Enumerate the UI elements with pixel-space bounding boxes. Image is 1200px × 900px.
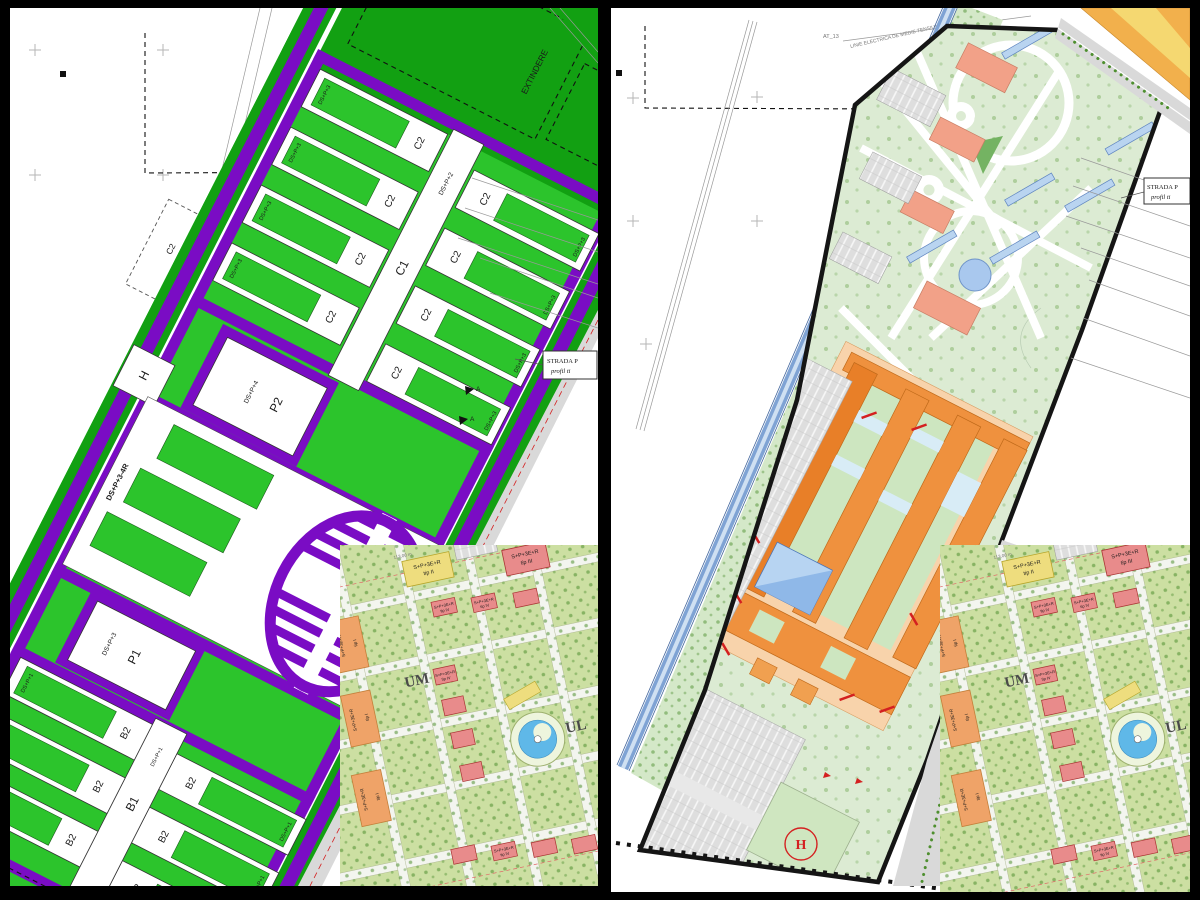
strada-line1: STRADA P: [1147, 184, 1178, 191]
section-a-label: A: [476, 386, 481, 393]
helipad-h-label: H: [796, 838, 807, 853]
plan-comparison-canvas: S+P+3E+R tip II S+P+3E+R tip III S+P+3E+…: [0, 0, 1200, 900]
section-a-label: A: [470, 416, 475, 423]
survey-marker: [616, 70, 622, 76]
pylon-label: AT_13: [823, 34, 839, 40]
strada-line1: STRADA P: [547, 358, 578, 365]
strada-line2: profil ti: [1150, 194, 1171, 201]
zoning-plan-panel: C2 C1 124000 PARC CLINICA ADULTI EXTINDE…: [10, 8, 598, 886]
site-plan-panel: AT_13 LINIE ELECTRICA DE MEDIE TENSIUNE: [611, 8, 1190, 886]
strada-line2: profil ti: [550, 368, 571, 375]
survey-marker: [60, 71, 66, 77]
pond: [959, 259, 991, 291]
